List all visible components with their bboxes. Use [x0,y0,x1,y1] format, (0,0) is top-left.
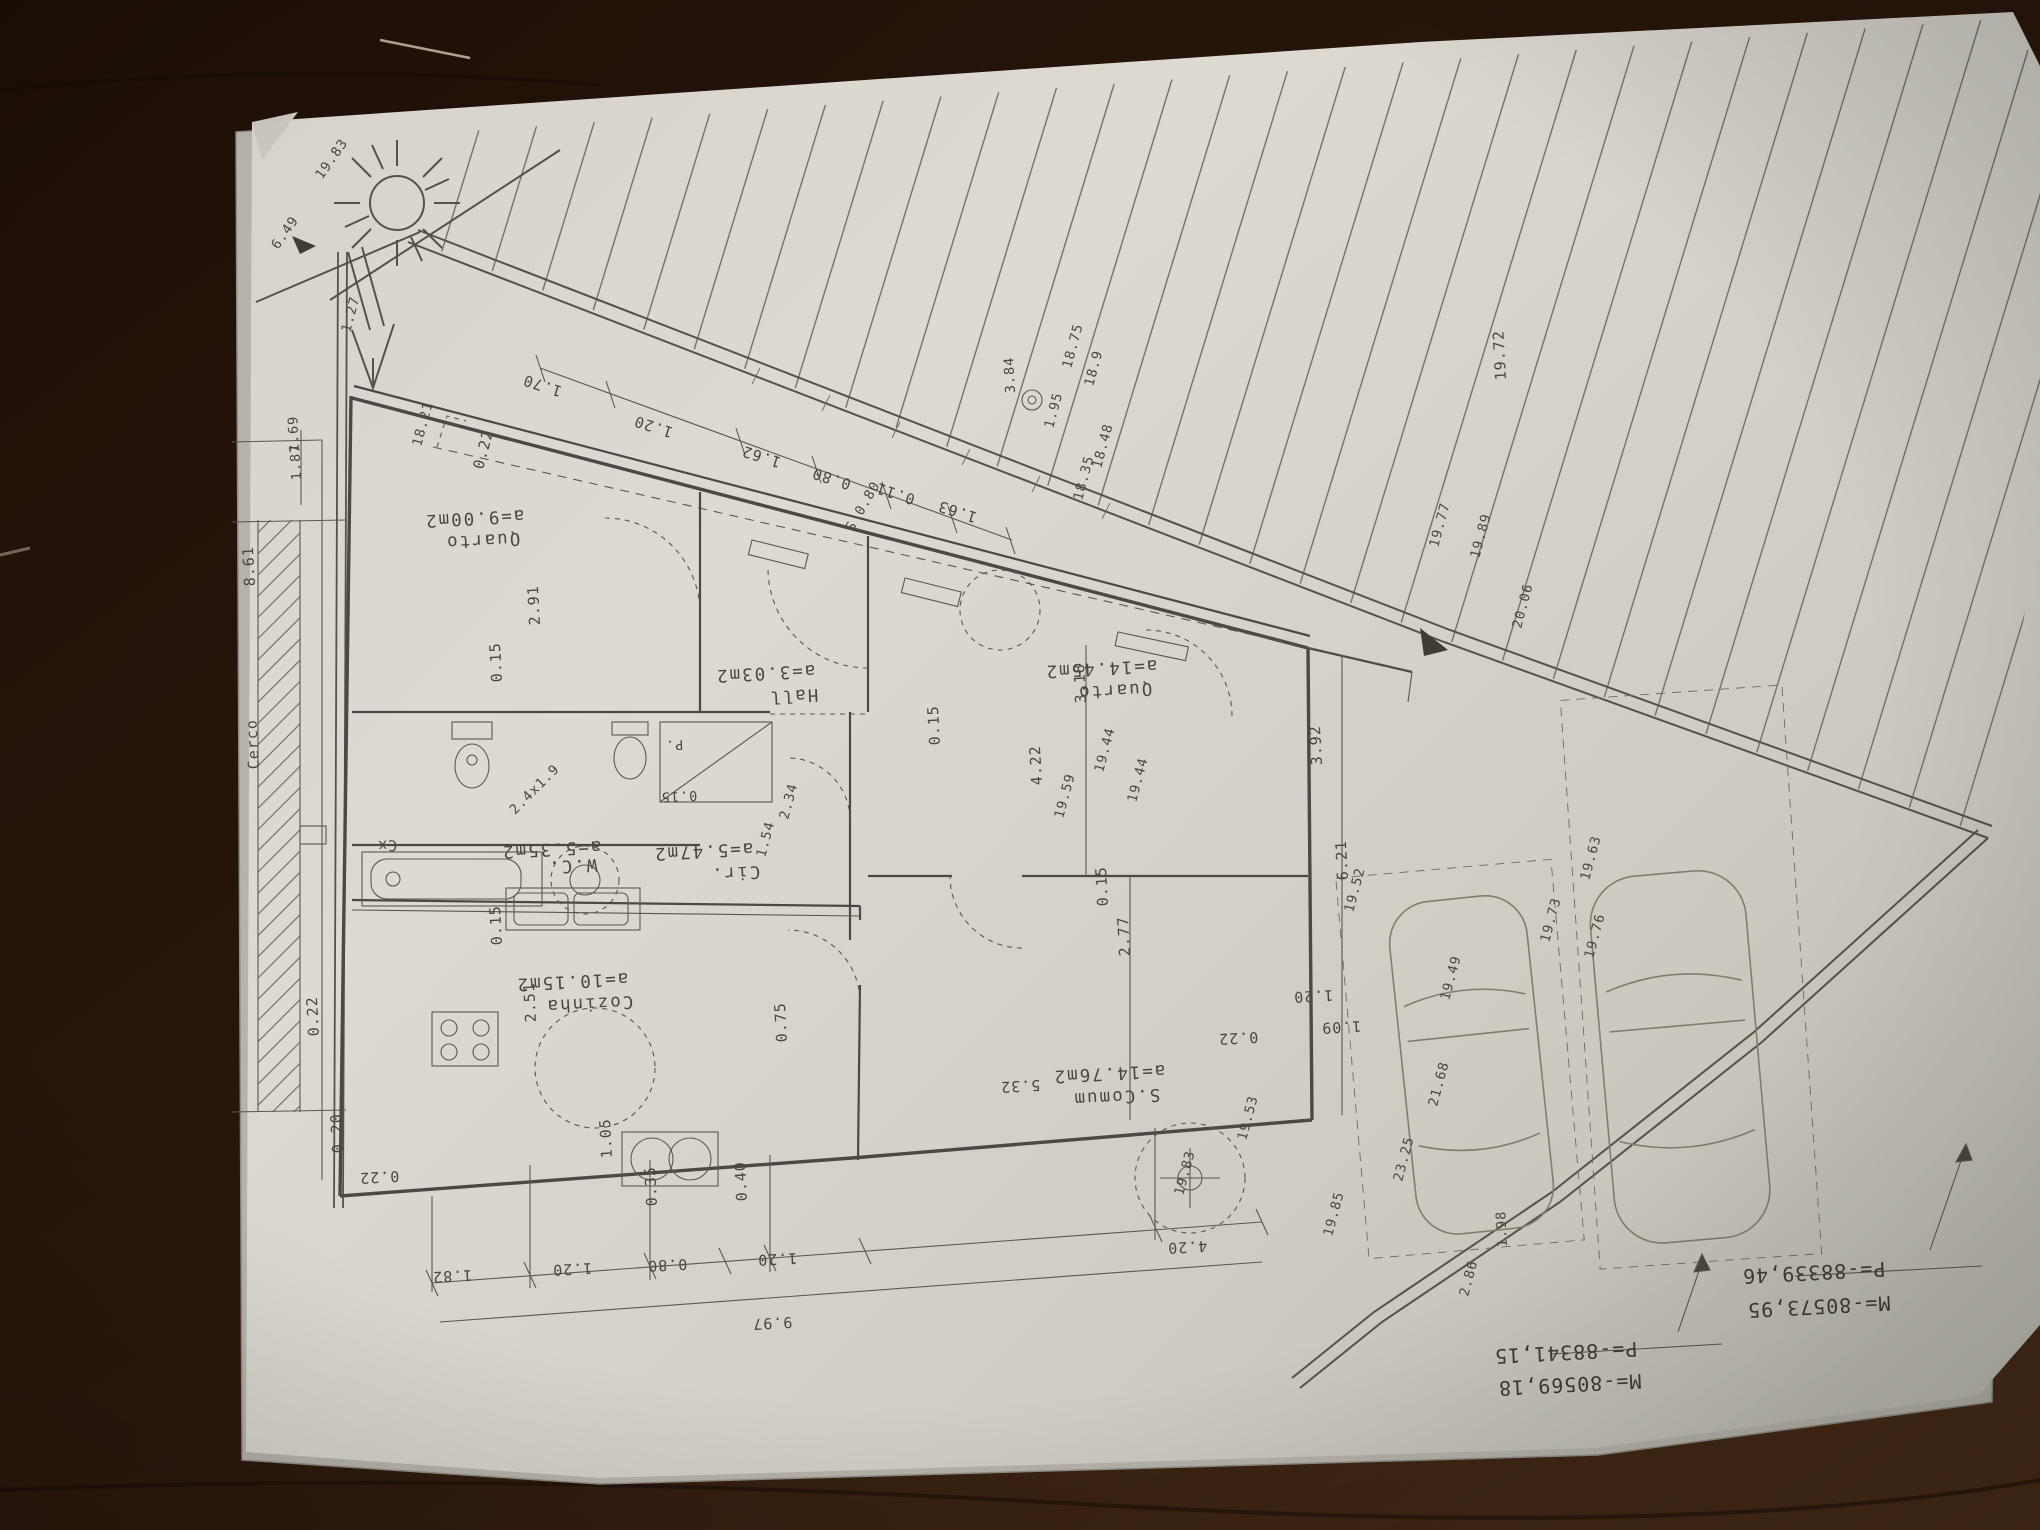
dim-label: 1.20 [757,1249,798,1269]
fence-hatch-strip [258,520,300,1112]
level-label: 19.72 [1489,330,1510,381]
dim-label: 0.35 [641,1166,661,1207]
dim-label: 1.82 [432,1266,473,1286]
dim-label: 1.20 [552,1259,593,1279]
dim-label: 4.22 [1026,745,1046,786]
dim-label: 6.21 [1332,840,1352,881]
dim-label: 8.61 [239,546,259,587]
dim-label: 2.77 [1114,916,1134,957]
dim-label: 3.92 [1306,725,1326,766]
room-label: Hall [768,684,819,707]
dim-label: 0.15 [486,642,506,683]
dim-label: 2.91 [524,585,544,626]
dim-label: 3.18 [1070,663,1090,704]
dim-label: 0.80 [647,1255,688,1275]
dim-label: 0.40 [731,1161,751,1202]
dim-label: 0.20 [327,1113,347,1154]
level-label: 3.84 [1001,356,1019,393]
room-label: Cir. [710,861,761,884]
floor-plan-drawing: Quarto a=9.00m2 Hall a=3.03m2 Quarto a=1… [0,0,2040,1530]
dim-label: 5.32 [1000,1076,1041,1096]
dim-label: 4.20 [1167,1237,1208,1257]
dim-label: 1.87 [287,443,305,480]
dim-label: 1.09 [1321,1017,1362,1037]
dim-label: 1.20 [1293,986,1334,1006]
dim-label: 0.15 [1092,866,1112,907]
level-label: 1.98 [1493,1210,1511,1247]
fence-label: Cerco [242,719,263,770]
dim-label: 0.22 [303,996,323,1037]
dim-label: 2.51 [520,982,540,1023]
room-label: Quarto [445,528,521,552]
dim-label: 9.97 [752,1313,793,1333]
cx-marker-label: Cx [377,836,398,855]
fixture-tag: P. [665,736,684,753]
dim-label: 0.15 [660,787,697,805]
dim-label: 0.15 [924,705,944,746]
dim-label: 0.22 [1218,1028,1259,1048]
photo-of-floor-plan: Quarto a=9.00m2 Hall a=3.03m2 Quarto a=1… [0,0,2040,1530]
dim-label: 0.15 [486,905,506,946]
dim-label: 0.75 [771,1002,791,1043]
dim-label: 0.22 [359,1167,400,1187]
dim-label: 1.05 [596,1118,616,1159]
